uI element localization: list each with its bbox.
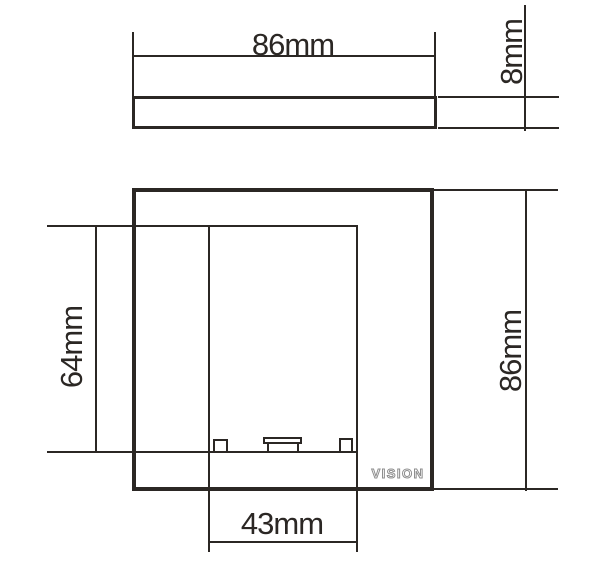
extension-line-aperture-width-right	[356, 453, 358, 552]
extension-line-aperture-bottom	[47, 451, 208, 453]
extension-line-thickness-bottom	[438, 127, 559, 129]
mounting-tab-left	[213, 439, 228, 453]
plate-profile-outline	[132, 96, 437, 129]
extension-line-profile-right	[434, 32, 436, 97]
extension-line-front-bottom	[434, 488, 558, 490]
extension-line-aperture-width-left	[208, 453, 210, 552]
dim-label-aperture-height: 64mm	[51, 287, 91, 407]
aperture-outline	[208, 225, 358, 453]
vision-logo: VISION	[365, 466, 431, 482]
dim-label-profile-width: 86mm	[233, 29, 353, 60]
mounting-tab-right	[339, 438, 353, 453]
extension-line-profile-left	[132, 32, 134, 97]
dimension-line-aperture-height	[95, 226, 97, 452]
dim-label-aperture-width: 43mm	[222, 508, 342, 539]
dimension-line-aperture-width	[209, 541, 358, 543]
extension-line-aperture-top	[47, 225, 208, 227]
extension-line-front-top	[434, 189, 558, 191]
mounting-tab-center-cap	[263, 437, 302, 444]
dim-label-thickness: 8mm	[493, 2, 529, 102]
dim-label-front-height: 86mm	[490, 291, 530, 411]
dimension-drawing: 86mm 8mm VISION 64mm 86mm	[0, 0, 607, 587]
mounting-tab-center-body	[267, 444, 299, 453]
